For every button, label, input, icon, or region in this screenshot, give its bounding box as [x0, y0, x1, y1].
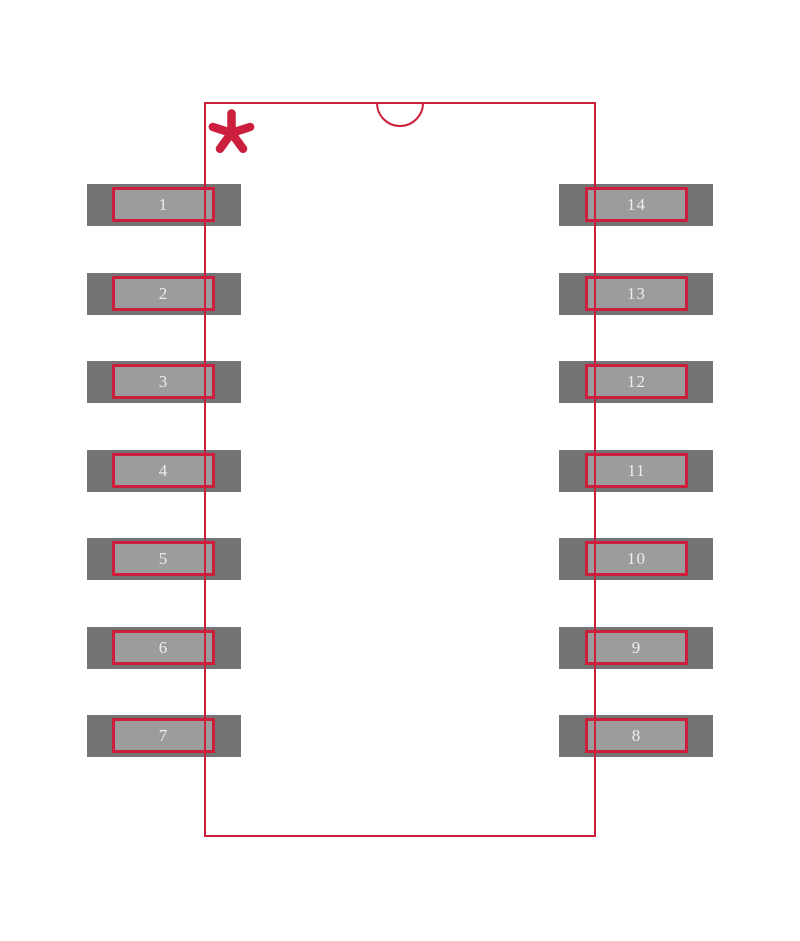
pin-number-label: 2: [159, 285, 169, 302]
pin-number-label: 13: [627, 285, 646, 302]
pin-outline-12: 12: [585, 364, 688, 399]
pad-13: 13: [559, 273, 713, 315]
pin-outline-9: 9: [585, 630, 688, 665]
pin-outline-11: 11: [585, 453, 688, 488]
pad-2: 2: [87, 273, 241, 315]
pin-outline-4: 4: [112, 453, 215, 488]
pin-outline-1: 1: [112, 187, 215, 222]
pad-7: 7: [87, 715, 241, 757]
pad-8: 8: [559, 715, 713, 757]
pads-layer: 1234567141312111098: [0, 0, 800, 941]
pin-outline-8: 8: [585, 718, 688, 753]
pin-outline-14: 14: [585, 187, 688, 222]
pin-number-label: 5: [159, 550, 169, 567]
pin-outline-2: 2: [112, 276, 215, 311]
pin-number-label: 8: [632, 727, 642, 744]
pad-11: 11: [559, 450, 713, 492]
pin-outline-10: 10: [585, 541, 688, 576]
pin-outline-6: 6: [112, 630, 215, 665]
pad-1: 1: [87, 184, 241, 226]
pin-number-label: 9: [632, 639, 642, 656]
pad-3: 3: [87, 361, 241, 403]
pin-number-label: 14: [627, 196, 646, 213]
pin-number-label: 12: [627, 373, 646, 390]
footprint-canvas: 1234567141312111098: [0, 0, 800, 941]
pin-number-label: 3: [159, 373, 169, 390]
pad-14: 14: [559, 184, 713, 226]
pad-9: 9: [559, 627, 713, 669]
pin-outline-5: 5: [112, 541, 215, 576]
pin-outline-13: 13: [585, 276, 688, 311]
pin-outline-7: 7: [112, 718, 215, 753]
pin-number-label: 7: [159, 727, 169, 744]
pin-number-label: 10: [627, 550, 646, 567]
pad-12: 12: [559, 361, 713, 403]
pad-6: 6: [87, 627, 241, 669]
pad-4: 4: [87, 450, 241, 492]
pad-10: 10: [559, 538, 713, 580]
pad-5: 5: [87, 538, 241, 580]
pin-number-label: 4: [159, 462, 169, 479]
pin-number-label: 11: [627, 462, 645, 479]
pin-number-label: 6: [159, 639, 169, 656]
pin-outline-3: 3: [112, 364, 215, 399]
pin-number-label: 1: [159, 196, 169, 213]
